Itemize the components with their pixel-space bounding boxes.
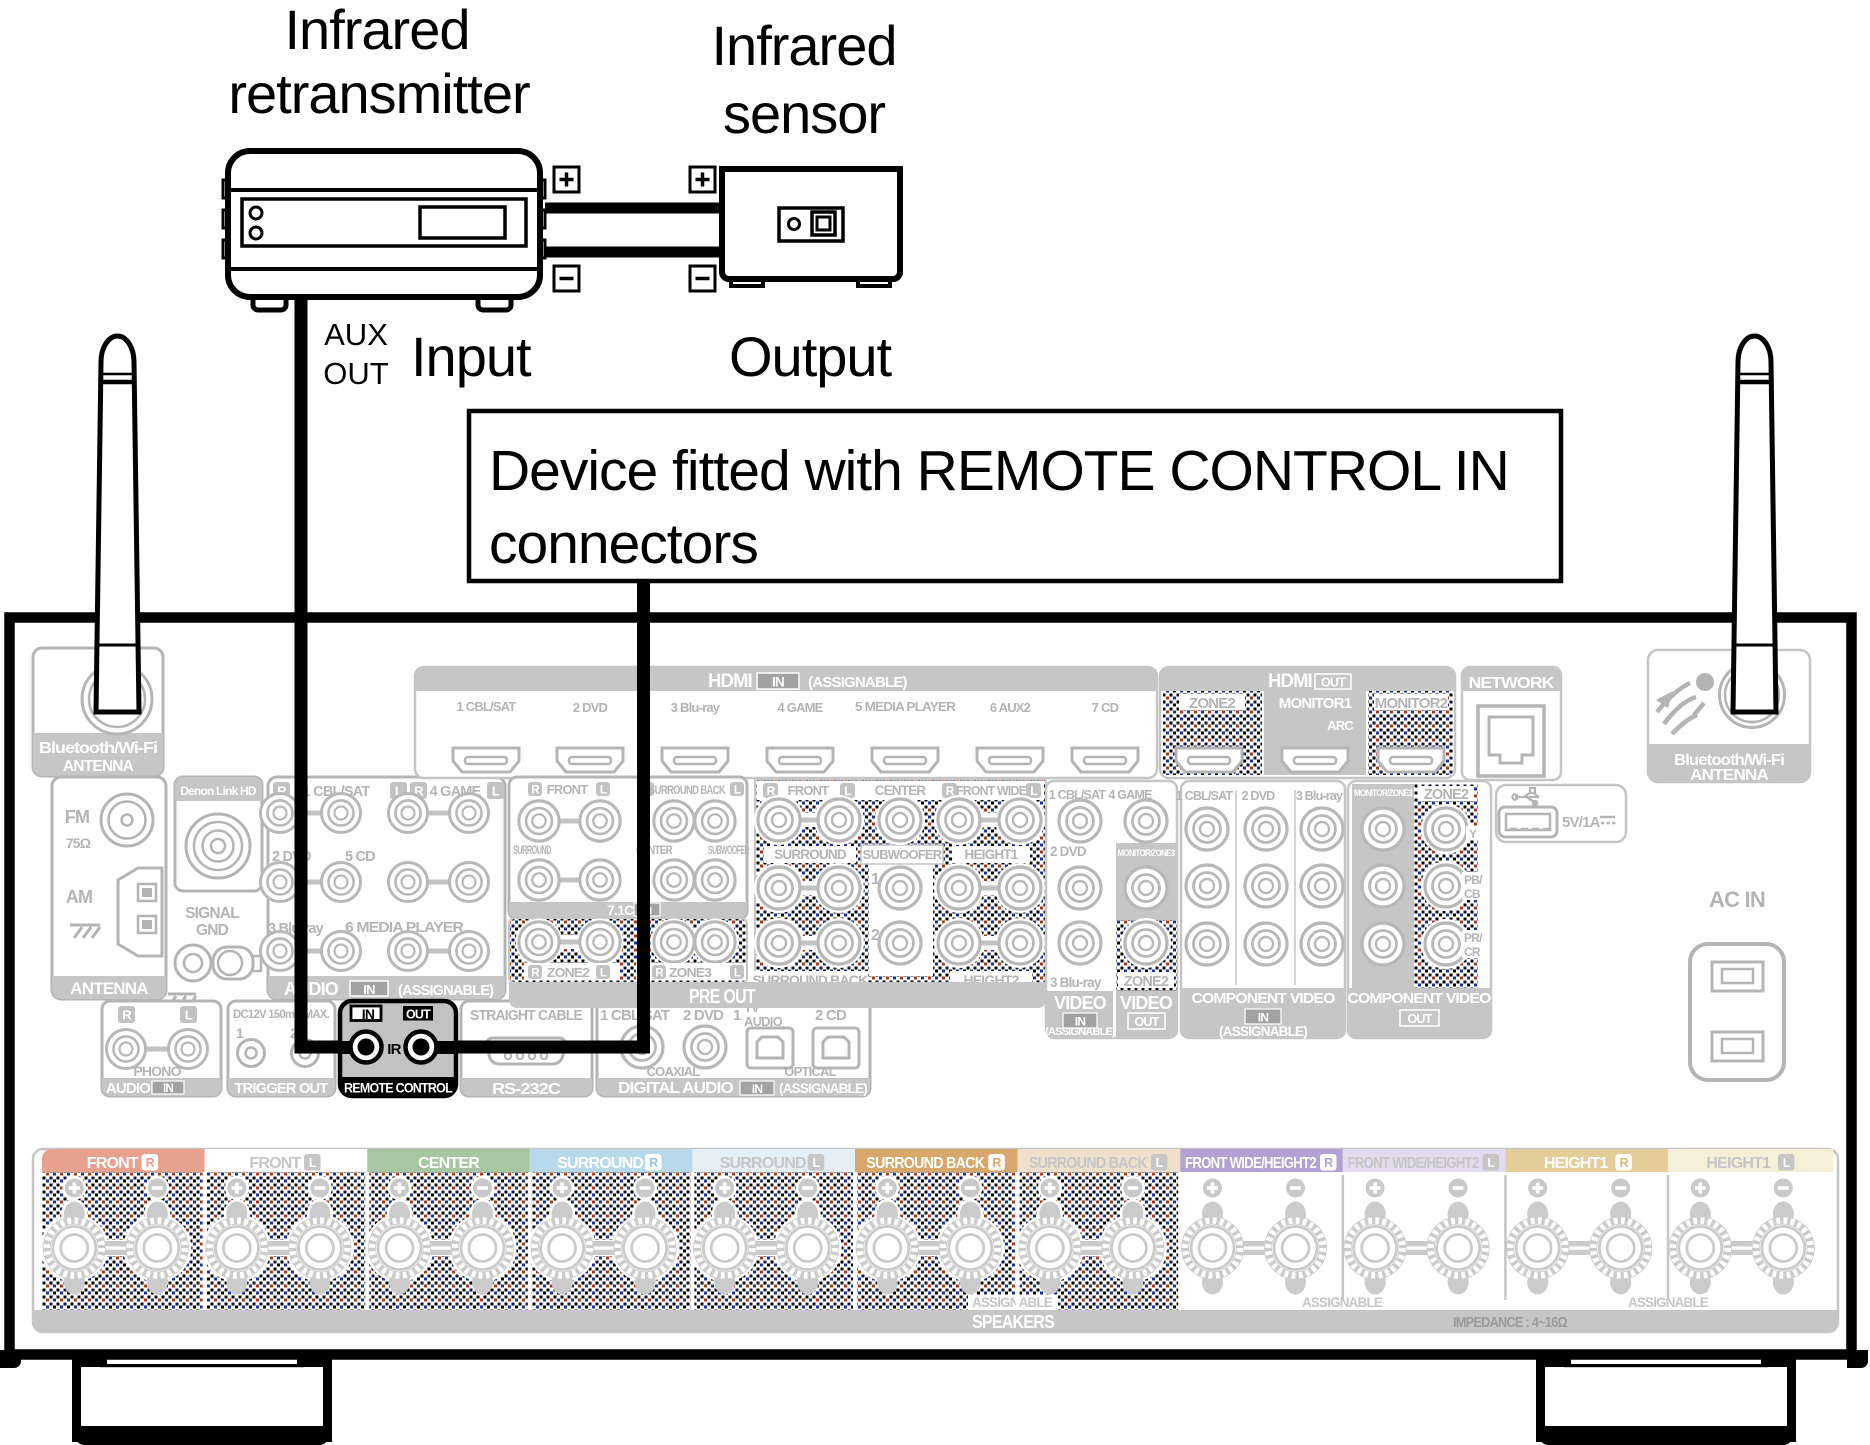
svg-text:1 CBL/SAT: 1 CBL/SAT [600, 1007, 670, 1024]
svg-text:Device fitted with REMOTE CONT: Device fitted with REMOTE CONTROL IN [489, 439, 1509, 503]
svg-text:FRONT: FRONT [249, 1155, 301, 1172]
svg-text:7 CD: 7 CD [1092, 700, 1119, 715]
svg-text:SURROUND: SURROUND [557, 1155, 643, 1172]
svg-text:retransmitter: retransmitter [228, 62, 530, 125]
svg-text:Infrared: Infrared [712, 14, 897, 77]
svg-text:SURROUND BACK: SURROUND BACK [866, 1155, 985, 1172]
svg-text:ANTENNA: ANTENNA [1690, 767, 1769, 784]
svg-text:R: R [122, 1008, 132, 1023]
svg-text:OUT: OUT [323, 356, 389, 391]
svg-text:(ASSIGNABLE): (ASSIGNABLE) [398, 983, 494, 999]
svg-text:75Ω: 75Ω [66, 835, 91, 851]
svg-text:ZONE2: ZONE2 [547, 965, 590, 980]
svg-text:OUT: OUT [1408, 1012, 1433, 1026]
svg-text:IMPEDANCE : 4~16Ω: IMPEDANCE : 4~16Ω [1453, 1315, 1568, 1331]
svg-text:1: 1 [236, 1025, 244, 1041]
svg-text:FRONT: FRONT [87, 1155, 139, 1172]
svg-text:L: L [1156, 1156, 1164, 1170]
svg-text:DC12V 150mA MAX.: DC12V 150mA MAX. [233, 1007, 329, 1021]
svg-text:TRIGGER OUT: TRIGGER OUT [235, 1080, 329, 1097]
svg-text:2 DVD: 2 DVD [1242, 789, 1276, 803]
svg-text:ASSIGNABLE: ASSIGNABLE [972, 1295, 1053, 1310]
svg-text:L: L [1783, 1156, 1791, 1170]
svg-text:OUT: OUT [1135, 1015, 1160, 1029]
svg-text:R: R [146, 1156, 155, 1170]
svg-text:L: L [492, 784, 500, 799]
svg-text:2 DVD: 2 DVD [1050, 844, 1087, 859]
svg-text:1: 1 [733, 1007, 741, 1024]
svg-text:Denon Link HD: Denon Link HD [180, 784, 257, 798]
svg-text:(ASSIGNABLE): (ASSIGNABLE) [779, 1081, 867, 1096]
svg-text:COMPONENT VIDEO: COMPONENT VIDEO [1192, 990, 1336, 1007]
svg-text:HEIGHT1: HEIGHT1 [1544, 1155, 1609, 1172]
svg-text:ANTENNA: ANTENNA [70, 979, 148, 998]
svg-text:REMOTE CONTROL: REMOTE CONTROL [344, 1081, 453, 1096]
svg-text:L: L [734, 785, 741, 797]
svg-text:2 DVD: 2 DVD [573, 700, 608, 715]
svg-text:ARC: ARC [1327, 718, 1354, 733]
svg-text:L: L [734, 968, 741, 980]
svg-text:5 MEDIA PLAYER: 5 MEDIA PLAYER [855, 699, 956, 714]
svg-text:3 Blu-ray: 3 Blu-ray [1050, 975, 1102, 990]
svg-text:3 Blu-ray: 3 Blu-ray [671, 700, 721, 715]
svg-text:AM: AM [66, 887, 92, 907]
svg-text:HDMI: HDMI [1268, 671, 1312, 692]
svg-text:SURROUND: SURROUND [513, 843, 552, 857]
svg-text:FM: FM [65, 807, 89, 827]
svg-text:L: L [309, 1156, 317, 1170]
svg-text:SPEAKERS: SPEAKERS [972, 1312, 1055, 1332]
svg-text:HEIGHT1: HEIGHT1 [1706, 1155, 1771, 1172]
svg-text:OUT: OUT [406, 1007, 431, 1022]
svg-text:L: L [812, 1156, 820, 1170]
svg-text:(ASSIGNABLE): (ASSIGNABLE) [1045, 1026, 1116, 1038]
svg-text:SUBWOOFER: SUBWOOFER [708, 843, 750, 857]
svg-text:connectors: connectors [489, 512, 758, 576]
svg-text:ANTENNA: ANTENNA [63, 758, 134, 775]
svg-text:ZONE2: ZONE2 [1424, 787, 1469, 803]
svg-text:VIDEO: VIDEO [1120, 993, 1173, 1013]
svg-text:PRE OUT: PRE OUT [689, 986, 755, 1008]
svg-text:3 Blu-ray: 3 Blu-ray [1296, 789, 1343, 803]
svg-text:AUDIO: AUDIO [284, 979, 339, 999]
svg-text:IN: IN [772, 675, 784, 690]
svg-text:CR: CR [1464, 945, 1481, 959]
svg-text:L: L [1030, 784, 1037, 798]
svg-text:AUDIO: AUDIO [106, 1080, 151, 1097]
svg-text:COAXIAL: COAXIAL [647, 1064, 701, 1079]
svg-text:R: R [1619, 1156, 1628, 1170]
svg-text:ZONE2: ZONE2 [1124, 974, 1169, 990]
svg-text:OUT: OUT [1321, 676, 1346, 690]
svg-text:Input: Input [411, 325, 532, 388]
svg-text:ZONE3: ZONE3 [669, 965, 712, 980]
svg-text:ASSIGNABLE: ASSIGNABLE [1628, 1295, 1709, 1310]
svg-text:R: R [1324, 1156, 1333, 1170]
svg-text:R: R [992, 1156, 1001, 1170]
svg-text:2 DVD: 2 DVD [683, 1007, 724, 1024]
svg-text:sensor: sensor [723, 82, 885, 145]
svg-text:GND: GND [196, 922, 229, 939]
svg-text:SUBWOOFER: SUBWOOFER [863, 847, 943, 862]
svg-text:L: L [600, 785, 607, 797]
svg-text:Y: Y [1469, 827, 1477, 841]
svg-text:Infrared: Infrared [285, 0, 470, 61]
svg-text:Output: Output [729, 325, 893, 388]
svg-text:ASSIGNABLE: ASSIGNABLE [1302, 1295, 1383, 1310]
svg-text:OPTICAL: OPTICAL [784, 1064, 836, 1079]
svg-text:6 AUX2: 6 AUX2 [990, 700, 1031, 715]
svg-text:NETWORK: NETWORK [1469, 675, 1556, 692]
svg-text:CENTER: CENTER [418, 1155, 480, 1172]
svg-text:4 GAME: 4 GAME [777, 700, 823, 715]
svg-text:1 CBL/SAT: 1 CBL/SAT [1176, 789, 1234, 803]
svg-text:HEIGHT1: HEIGHT1 [965, 847, 1019, 862]
svg-text:IR: IR [387, 1041, 401, 1058]
svg-text:PB/: PB/ [1464, 873, 1483, 887]
svg-text:(ASSIGNABLE): (ASSIGNABLE) [1219, 1024, 1307, 1039]
svg-text:L: L [600, 968, 607, 980]
svg-text:FRONT: FRONT [788, 783, 830, 798]
svg-text:IN: IN [363, 982, 375, 997]
svg-text:VIDEO: VIDEO [1054, 993, 1107, 1013]
svg-text:IN: IN [752, 1082, 763, 1096]
svg-text:SURROUND: SURROUND [720, 1155, 806, 1172]
svg-text:CB: CB [1464, 887, 1481, 901]
svg-text:RS-232C: RS-232C [492, 1081, 561, 1098]
svg-text:PHONO: PHONO [133, 1063, 181, 1079]
svg-text:MONITOR/ZONE3: MONITOR/ZONE3 [1118, 848, 1175, 859]
svg-text:PR/: PR/ [1464, 931, 1483, 945]
svg-text:STRAIGHT CABLE: STRAIGHT CABLE [470, 1008, 583, 1024]
svg-text:R: R [649, 1156, 658, 1170]
svg-text:IN: IN [1258, 1011, 1269, 1025]
svg-text:IN: IN [362, 1006, 375, 1022]
svg-text:L: L [1487, 1156, 1495, 1170]
svg-text:COMPONENT VIDEO: COMPONENT VIDEO [1348, 990, 1492, 1007]
svg-text:5 CD: 5 CD [345, 849, 375, 865]
svg-text:MONITOR2: MONITOR2 [1375, 695, 1448, 712]
svg-text:HDMI: HDMI [708, 671, 752, 692]
svg-text:SIGNAL: SIGNAL [185, 905, 239, 922]
svg-text:Bluetooth/Wi-Fi: Bluetooth/Wi-Fi [39, 740, 158, 757]
svg-text:FRONT: FRONT [547, 782, 589, 797]
svg-text:MONITOR1: MONITOR1 [1279, 695, 1352, 712]
svg-text:(ASSIGNABLE): (ASSIGNABLE) [808, 674, 908, 691]
svg-text:5V/1A: 5V/1A [1562, 814, 1601, 831]
svg-text:FRONT WIDE/HEIGHT2: FRONT WIDE/HEIGHT2 [1185, 1155, 1316, 1172]
svg-text:ZONE2: ZONE2 [1189, 695, 1235, 712]
svg-text:2 CD: 2 CD [815, 1007, 847, 1024]
svg-text:SURROUND BACK: SURROUND BACK [1029, 1155, 1148, 1172]
svg-text:AUX: AUX [324, 317, 388, 352]
svg-text:IN: IN [163, 1083, 173, 1095]
svg-text:1 CBL/SAT: 1 CBL/SAT [456, 699, 516, 714]
svg-text:L: L [185, 1008, 193, 1023]
svg-text:AC IN: AC IN [1709, 887, 1765, 912]
svg-text:DIGITAL AUDIO: DIGITAL AUDIO [618, 1080, 733, 1097]
svg-text:FRONT WIDE/HEIGHT2: FRONT WIDE/HEIGHT2 [1348, 1155, 1479, 1172]
svg-text:SURROUND: SURROUND [774, 847, 847, 862]
svg-text:SURROUND BACK: SURROUND BACK [649, 783, 726, 797]
svg-text:MONITOR/ZONE3: MONITOR/ZONE3 [1354, 788, 1412, 799]
